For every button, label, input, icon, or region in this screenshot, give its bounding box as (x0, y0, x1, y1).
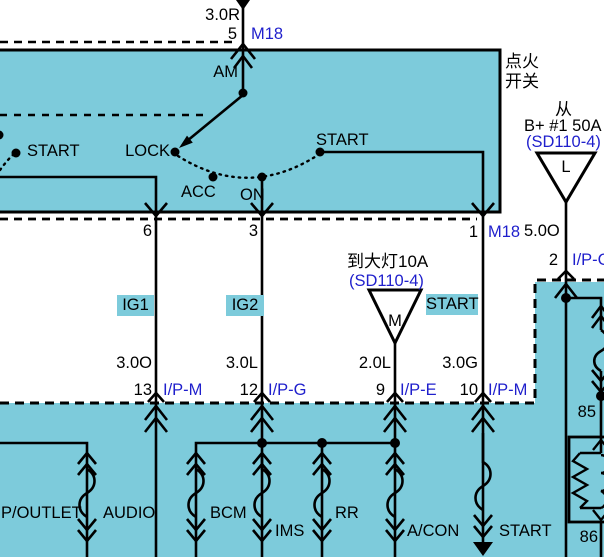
pin-5: 5 (197, 25, 237, 43)
pin-3: 3 (228, 222, 258, 240)
pin-12: 12 (218, 381, 258, 399)
switch-contact-start-left (12, 149, 21, 158)
wire-spec-start: 3.0G (428, 354, 478, 372)
fuse-bcm-line1: BCM (210, 503, 247, 525)
switch-label-start-left: START (27, 142, 80, 160)
junction-dot-acon (390, 438, 400, 448)
switch-label-lock: LOCK (110, 142, 170, 160)
fuse-label-poutlet: P/OUTLET CTR 15A (1, 460, 82, 557)
connector-ip-m-10: I/P-M (488, 381, 527, 399)
wire-spec-3-0r: 3.0R (180, 6, 240, 24)
pin-13: 13 (112, 381, 152, 399)
fuse-label-ims: IMS 10A (275, 478, 304, 557)
pin-10: 10 (438, 381, 478, 399)
headlamp-label: 到大灯10A (347, 252, 428, 272)
headlamp-ref: (SD110-4) (349, 272, 424, 290)
pin-6: 6 (122, 222, 152, 240)
switch-label-on: ON (240, 186, 265, 204)
ignition-switch-title-1: 点火 (505, 52, 539, 72)
fuse-ims-line1: IMS (275, 521, 304, 543)
junction-dot-ims (257, 438, 267, 448)
fuse-rrwiper-line1: RR (335, 503, 389, 525)
connector-m18-top: M18 (251, 25, 283, 43)
fuse-label-rrwiper: RR WIPER 15A (335, 460, 389, 557)
ignition-switch-title-2: 开关 (505, 72, 539, 92)
circuit-tag-ig1: IG1 (117, 295, 154, 316)
circuit-tag-ig2: IG2 (226, 295, 264, 316)
wire-spec-ig2: 3.0L (208, 354, 258, 372)
switch-contact-acc (209, 173, 218, 182)
wire-spec-headlamp: 2.0L (341, 354, 391, 372)
switch-label-start-right: START (316, 131, 369, 149)
fuse-label-audio: AUDIO #2 10A (103, 460, 155, 557)
bplus-ref: (SD110-4) (526, 133, 601, 151)
pin-1: 1 (448, 223, 478, 241)
fuse-label-acon: A/CON 10A (407, 478, 459, 557)
fuse-start-line1: START (499, 521, 552, 543)
wire-spec-5-0o: 5.0O (524, 222, 560, 240)
fuse-acon-line1: A/CON (407, 521, 459, 543)
switch-contact-lock (171, 148, 180, 157)
triangle-letter-L: L (554, 158, 578, 176)
pin-2: 2 (528, 251, 558, 269)
switch-label-am: AM (198, 63, 238, 81)
connector-ip-m-13: I/P-M (163, 381, 202, 399)
switch-label-acc: ACC (181, 183, 216, 201)
fuse-label-bcm: BCM #2 10A (210, 460, 247, 557)
connector-m18-bottom: M18 (488, 223, 520, 241)
connector-ip-g: I/P-G (268, 381, 307, 399)
triangle-letter-M: M (383, 312, 407, 330)
pin-9: 9 (345, 381, 385, 399)
fuse-audio-line1: AUDIO (103, 503, 155, 525)
relay-terminal-86: 86 (568, 528, 598, 546)
circuit-tag-start: START (426, 294, 478, 315)
relay-terminal-85: 85 (566, 403, 596, 421)
fuse-poutlet-line1: P/OUTLET (1, 503, 82, 525)
junction-dot-rrwiper (317, 438, 327, 448)
wiring-diagram-page: 3.0R 5 M18 点火 开关 AM LOCK ACC ON START ST… (0, 0, 604, 557)
connector-ip-e: I/P-E (400, 381, 437, 399)
connector-ip-c: I/P-C (572, 251, 604, 269)
fuse-label-start: START 10A (499, 478, 552, 557)
wire-spec-ig1: 3.0O (102, 354, 152, 372)
